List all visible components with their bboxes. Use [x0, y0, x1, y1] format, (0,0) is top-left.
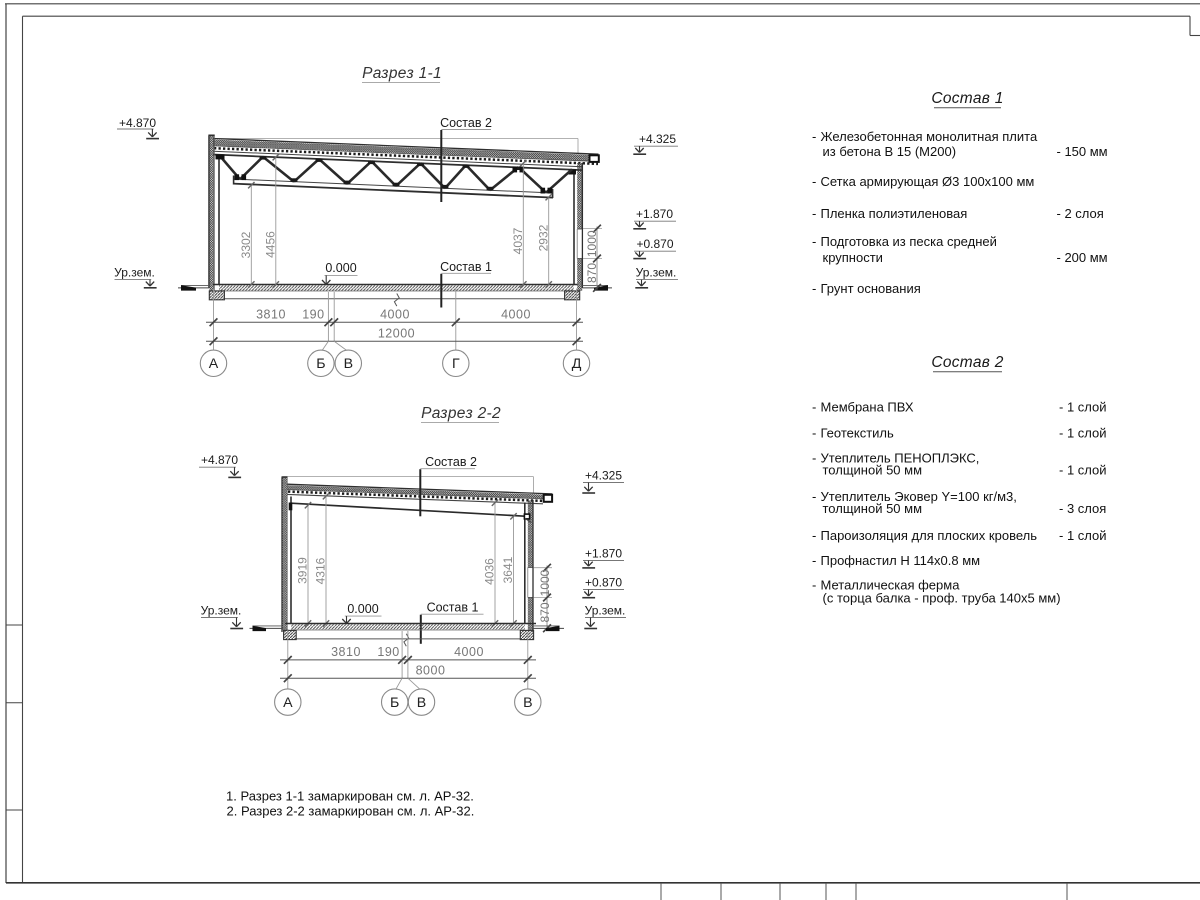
svg-text:+4.325: +4.325: [639, 132, 676, 146]
svg-text:- 2 слоя: - 2 слоя: [1057, 206, 1104, 221]
svg-text:1. Разрез 1-1 замаркирован см.: 1. Разрез 1-1 замаркирован см. л. АР-32.: [226, 789, 474, 804]
svg-text:+4.325: +4.325: [585, 469, 622, 483]
svg-text:толщиной 50 мм: толщиной 50 мм: [823, 462, 923, 477]
svg-text:4000: 4000: [380, 308, 410, 322]
svg-text:4037: 4037: [511, 227, 525, 254]
svg-text:из бетона В 15 (М200): из бетона В 15 (М200): [823, 144, 957, 159]
svg-text:Подготовка из песка средней: Подготовка из песка средней: [821, 234, 997, 249]
svg-text:2. Разрез 2-2 замаркирован см.: 2. Разрез 2-2 замаркирован см. л. АР-32.: [227, 804, 475, 819]
svg-text:0.000: 0.000: [347, 602, 378, 616]
svg-text:-: -: [812, 129, 816, 144]
svg-text:-: -: [812, 577, 816, 592]
svg-text:Состав 1: Состав 1: [427, 600, 479, 614]
svg-text:1000: 1000: [585, 230, 599, 257]
svg-text:2932: 2932: [536, 224, 550, 251]
svg-text:(с торца балка - проф. труба 1: (с торца балка - проф. труба 140х5 мм): [823, 590, 1061, 605]
svg-text:Состав 2: Состав 2: [440, 116, 492, 130]
svg-text:-: -: [812, 281, 816, 296]
svg-text:- 1 слой: - 1 слой: [1059, 399, 1107, 414]
svg-text:- 1 слой: - 1 слой: [1059, 462, 1107, 477]
svg-text:Состав 2: Состав 2: [931, 354, 1003, 371]
svg-text:4000: 4000: [501, 308, 531, 322]
svg-text:крупности: крупности: [823, 250, 883, 265]
svg-text:0.000: 0.000: [325, 261, 356, 275]
svg-text:-: -: [812, 206, 816, 221]
svg-text:- 150 мм: - 150 мм: [1057, 144, 1108, 159]
svg-text:4456: 4456: [264, 231, 278, 258]
svg-text:Б: Б: [390, 695, 399, 711]
svg-text:190: 190: [377, 645, 399, 659]
svg-text:+4.870: +4.870: [119, 116, 156, 130]
svg-text:-: -: [812, 399, 816, 414]
svg-text:-: -: [812, 489, 816, 504]
svg-text:А: А: [283, 695, 293, 711]
svg-text:Разрез 1-1: Разрез 1-1: [362, 65, 442, 82]
svg-text:3919: 3919: [296, 557, 310, 584]
svg-text:-: -: [812, 174, 816, 189]
svg-text:Грунт основания: Грунт основания: [821, 281, 921, 296]
svg-text:А: А: [209, 356, 219, 372]
svg-text:3302: 3302: [239, 231, 253, 258]
svg-text:Мембрана ПВХ: Мембрана ПВХ: [821, 399, 914, 414]
svg-text:Геотекстиль: Геотекстиль: [821, 425, 895, 440]
svg-text:Пароизоляция для плоских крове: Пароизоляция для плоских кровель: [821, 528, 1038, 543]
svg-text:4036: 4036: [483, 558, 497, 585]
svg-text:+1.870: +1.870: [585, 547, 622, 561]
svg-text:Ур.зем.: Ур.зем.: [201, 604, 242, 618]
svg-text:-: -: [812, 425, 816, 440]
svg-text:В: В: [523, 695, 532, 711]
svg-text:Сетка армирующая Ø3 100х100 мм: Сетка армирующая Ø3 100х100 мм: [821, 174, 1035, 189]
svg-text:-: -: [812, 553, 816, 568]
svg-text:4000: 4000: [454, 645, 484, 659]
svg-text:Профнастил Н 114х0.8 мм: Профнастил Н 114х0.8 мм: [821, 553, 981, 568]
svg-text:+1.870: +1.870: [636, 207, 673, 221]
svg-text:870: 870: [585, 263, 599, 283]
svg-text:-: -: [812, 234, 816, 249]
svg-text:Д: Д: [572, 356, 582, 372]
svg-text:-: -: [812, 528, 816, 543]
svg-text:- 200 мм: - 200 мм: [1057, 250, 1108, 265]
svg-text:Ур.зем.: Ур.зем.: [636, 266, 677, 280]
svg-text:190: 190: [302, 308, 324, 322]
svg-text:Железобетонная монолитная пли: Железобетонная монолитная плита: [821, 129, 1038, 144]
svg-text:+0.870: +0.870: [636, 237, 673, 251]
svg-text:1000: 1000: [538, 569, 552, 596]
svg-text:Разрез 2-2: Разрез 2-2: [421, 405, 501, 422]
svg-text:Г: Г: [452, 356, 460, 372]
svg-text:3641: 3641: [501, 556, 515, 583]
svg-text:толщиной 50 мм: толщиной 50 мм: [823, 501, 923, 516]
svg-text:Ур.зем.: Ур.зем.: [585, 604, 626, 618]
svg-text:Ур.зем.: Ур.зем.: [114, 266, 155, 280]
svg-text:- 1 слой: - 1 слой: [1059, 425, 1107, 440]
svg-text:В: В: [417, 695, 426, 711]
svg-text:8000: 8000: [416, 664, 446, 678]
svg-text:Б: Б: [316, 356, 325, 372]
svg-text:4316: 4316: [314, 557, 328, 584]
svg-text:-: -: [812, 450, 816, 465]
svg-text:Состав 1: Состав 1: [931, 90, 1003, 107]
svg-text:В: В: [344, 356, 353, 372]
svg-text:+0.870: +0.870: [585, 576, 622, 590]
svg-text:Состав 2: Состав 2: [425, 455, 477, 469]
svg-text:Состав 1: Состав 1: [440, 260, 492, 274]
svg-text:12000: 12000: [378, 327, 415, 341]
svg-text:+4.870: +4.870: [201, 453, 238, 467]
svg-text:3810: 3810: [256, 308, 286, 322]
svg-text:Пленка полиэтиленовая: Пленка полиэтиленовая: [821, 206, 968, 221]
svg-text:- 1 слой: - 1 слой: [1059, 528, 1107, 543]
svg-text:870: 870: [538, 602, 552, 622]
svg-text:3810: 3810: [331, 645, 361, 659]
svg-text:- 3 слоя: - 3 слоя: [1059, 501, 1106, 516]
